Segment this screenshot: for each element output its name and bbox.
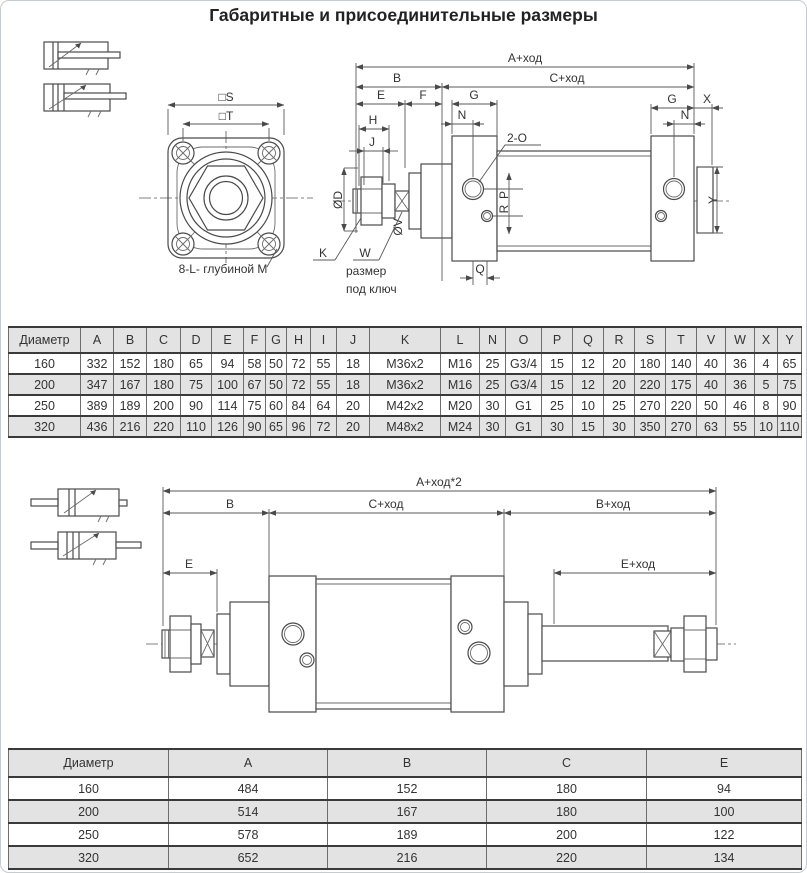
pneumatic-symbol-double-rod-2 — [31, 532, 141, 565]
dimension-cell: 180 — [635, 353, 666, 374]
column-header: Y — [778, 327, 802, 353]
dimension-cell: 63 — [697, 416, 726, 437]
dim-label-a-stroke-x2: A+ход*2 — [416, 475, 462, 489]
column-header: Диаметр — [9, 327, 81, 353]
column-header: A — [169, 749, 328, 777]
pneumatic-symbol-single-rod-2 — [44, 84, 126, 117]
dim-label-g-left: G — [469, 88, 478, 102]
dim-label-f: F — [419, 88, 426, 102]
dimension-cell: 652 — [169, 846, 328, 869]
dimension-cell: M42x2 — [370, 395, 441, 416]
dim-label-c-stroke: C+ход — [550, 71, 585, 85]
dimension-cell: 75 — [778, 374, 802, 395]
dim-label-n-right: N — [681, 108, 690, 122]
dimension-cell: 332 — [81, 353, 114, 374]
column-header: K — [370, 327, 441, 353]
dimension-cell: 220 — [487, 846, 647, 869]
dimension-cell: 200 — [487, 823, 647, 846]
dimension-cell: 20 — [337, 395, 370, 416]
column-header: L — [441, 327, 480, 353]
dimension-cell: 50 — [697, 395, 726, 416]
dimension-cell: 75 — [181, 374, 212, 395]
table-row: 200514167180100 — [9, 800, 802, 823]
dimension-cell: 25 — [480, 353, 506, 374]
dimension-cell: M48x2 — [370, 416, 441, 437]
dimension-cell: 152 — [328, 777, 487, 800]
dimension-cell: 270 — [635, 395, 666, 416]
dimension-cell: 90 — [244, 416, 266, 437]
dimension-cell: 36 — [726, 374, 755, 395]
dimension-cell: 140 — [666, 353, 697, 374]
dimension-cell: M16 — [441, 374, 480, 395]
table-row: 3204362162201101269065967220M48x2M2430G1… — [9, 416, 802, 437]
dim-label-b: B — [393, 71, 401, 85]
dimension-cell: G1 — [506, 395, 542, 416]
dimension-cell: 220 — [666, 395, 697, 416]
dimension-cell: 36 — [726, 353, 755, 374]
dimension-cell: 220 — [635, 374, 666, 395]
dimension-cell: 40 — [697, 353, 726, 374]
page-card: Габаритные и присоединительные размеры — [0, 0, 807, 873]
column-header: D — [181, 327, 212, 353]
column-header: V — [697, 327, 726, 353]
dimension-cell: 55 — [311, 353, 337, 374]
pneumatic-symbol-double-rod-1 — [31, 489, 127, 522]
column-header: J — [337, 327, 370, 353]
flange-thread-note: 8-L- глубиной M — [179, 262, 268, 276]
column-header: E — [647, 749, 802, 777]
dimension-cell: 216 — [114, 416, 147, 437]
dim-label-r: R — [497, 204, 511, 213]
dim-label-b: B — [226, 497, 234, 511]
dimension-cell: 216 — [328, 846, 487, 869]
wrench-size-note-line2: под ключ — [346, 282, 397, 296]
header-row: ДиаметрABCDEFGHIJKLNOPQRSTVWXY — [9, 327, 802, 353]
dimension-cell: 220 — [147, 416, 181, 437]
dimension-cell: 160 — [9, 777, 169, 800]
cylinder-side-view — [333, 136, 729, 261]
dim-label-n-left: N — [458, 108, 467, 122]
dimension-cell: 72 — [287, 374, 311, 395]
dimension-cell: 200 — [9, 374, 81, 395]
dim-label-c-stroke: C+ход — [369, 497, 404, 511]
table-row: 200347167180751006750725518M36x2M1625G3/… — [9, 374, 802, 395]
dimension-cell: 15 — [542, 353, 573, 374]
dimension-cell: 436 — [81, 416, 114, 437]
dimension-cell: 114 — [212, 395, 244, 416]
drawing-double-rod-cylinder: A+ход*2 B C+ход B+ход E E+ход — [1, 469, 807, 747]
dimension-cell: 160 — [9, 353, 81, 374]
column-header: S — [635, 327, 666, 353]
dimension-cell: 110 — [778, 416, 802, 437]
dimension-cell: 484 — [169, 777, 328, 800]
dimension-cell: 30 — [604, 416, 635, 437]
column-header: W — [726, 327, 755, 353]
column-header: T — [666, 327, 697, 353]
dimension-cell: 30 — [480, 416, 506, 437]
dimension-cell: 100 — [212, 374, 244, 395]
column-header: I — [311, 327, 337, 353]
dimension-cell: 18 — [337, 353, 370, 374]
double-rod-cylinder-side-view — [146, 576, 736, 712]
column-header: A — [81, 327, 114, 353]
dimension-cell: 25 — [542, 395, 573, 416]
dimension-cell: 96 — [287, 416, 311, 437]
dimension-cell: 320 — [9, 846, 169, 869]
dimension-cell: 40 — [697, 374, 726, 395]
dimension-cell: 46 — [726, 395, 755, 416]
dimension-cell: 180 — [147, 374, 181, 395]
table-row: 16033215218065945850725518M36x2M1625G3/4… — [9, 353, 802, 374]
dimension-cell: 65 — [181, 353, 212, 374]
dimension-cell: 72 — [287, 353, 311, 374]
dimension-cell: 250 — [9, 395, 81, 416]
column-header: Q — [573, 327, 604, 353]
dimension-cell: 389 — [81, 395, 114, 416]
dimension-cell: 320 — [9, 416, 81, 437]
column-header: R — [604, 327, 635, 353]
dim-label-q-left: Q — [475, 262, 484, 276]
dimension-cell: M24 — [441, 416, 480, 437]
dimension-cell: 200 — [147, 395, 181, 416]
dimension-cell: 58 — [244, 353, 266, 374]
dimensions-table-double-rod: ДиаметрABCE16048415218094200514167180100… — [8, 748, 802, 870]
dimension-cell: 90 — [778, 395, 802, 416]
dimension-cell: 25 — [604, 395, 635, 416]
dimension-cell: 25 — [480, 374, 506, 395]
dimension-cell: 12 — [573, 374, 604, 395]
dimension-cell: M36x2 — [370, 353, 441, 374]
dimension-cell: 180 — [147, 353, 181, 374]
dimension-cell: 110 — [181, 416, 212, 437]
dimension-cell: 72 — [311, 416, 337, 437]
dimension-cell: 152 — [114, 353, 147, 374]
table-row: 16048415218094 — [9, 777, 802, 800]
dim-label-e-stroke: E+ход — [621, 557, 655, 571]
dim-label-w: W — [359, 246, 371, 260]
dimension-cell: 134 — [647, 846, 802, 869]
wrench-size-note-line1: размер — [346, 264, 387, 278]
column-header: X — [755, 327, 778, 353]
dimension-cell: 126 — [212, 416, 244, 437]
dimension-cell: G1 — [506, 416, 542, 437]
dimension-cell: M20 — [441, 395, 480, 416]
dimension-cell: 15 — [542, 374, 573, 395]
column-header: N — [480, 327, 506, 353]
dimension-cell: 60 — [266, 395, 287, 416]
column-header: C — [147, 327, 181, 353]
dimension-cell: 18 — [337, 374, 370, 395]
dimension-cell: 15 — [573, 416, 604, 437]
dimension-cell: 55 — [726, 416, 755, 437]
dim-label-x: X — [703, 92, 711, 106]
dimension-cell: 10 — [755, 416, 778, 437]
dimension-cell: 175 — [666, 374, 697, 395]
dimension-cell: 10 — [573, 395, 604, 416]
dimension-cell: 20 — [604, 353, 635, 374]
dimension-cell: G3/4 — [506, 374, 542, 395]
dimension-cell: 200 — [9, 800, 169, 823]
dimension-cell: 250 — [9, 823, 169, 846]
dimension-cell: 94 — [647, 777, 802, 800]
flange-front-view — [139, 131, 313, 263]
page-title: Габаритные и присоединительные размеры — [1, 5, 806, 26]
dim-label-square-t: □T — [219, 109, 234, 123]
dimension-cell: 64 — [311, 395, 337, 416]
dimension-cell: 578 — [169, 823, 328, 846]
dimension-cell: 122 — [647, 823, 802, 846]
dimension-cell: 94 — [212, 353, 244, 374]
dim-label-ports-2-o: 2-O — [507, 131, 527, 145]
column-header: C — [487, 749, 647, 777]
dimension-cell: 347 — [81, 374, 114, 395]
column-header: E — [212, 327, 244, 353]
drawing-single-rod-cylinder: □S □T 8-L- глубиной M — [1, 31, 807, 327]
dimension-cell: 65 — [778, 353, 802, 374]
dimension-cell: 12 — [573, 353, 604, 374]
table-row: 250578189200122 — [9, 823, 802, 846]
dim-label-k: K — [319, 246, 327, 260]
dimension-cell: 8 — [755, 395, 778, 416]
dimension-cell: 75 — [244, 395, 266, 416]
dimension-cell: M36x2 — [370, 374, 441, 395]
dim-label-a-stroke: A+ход — [508, 51, 542, 65]
dimension-cell: 167 — [328, 800, 487, 823]
dimension-cell: 55 — [311, 374, 337, 395]
column-header: G — [266, 327, 287, 353]
pneumatic-symbol-single-rod-1 — [44, 42, 120, 75]
dimension-cell: 5 — [755, 374, 778, 395]
column-header: B — [328, 749, 487, 777]
dim-label-j: J — [369, 135, 375, 149]
dimension-cell: 50 — [266, 353, 287, 374]
dimension-cell: 84 — [287, 395, 311, 416]
column-header: F — [244, 327, 266, 353]
dimension-cell: 350 — [635, 416, 666, 437]
dimension-cell: 50 — [266, 374, 287, 395]
dimension-cell: 100 — [647, 800, 802, 823]
column-header: P — [542, 327, 573, 353]
dimensions-table-main: ДиаметрABCDEFGHIJKLNOPQRSTVWXY1603321521… — [8, 326, 802, 438]
dim-label-y: Y — [706, 196, 720, 204]
dim-label-diameter-d: ØD — [331, 191, 345, 209]
dimension-cell: 65 — [266, 416, 287, 437]
dimension-cell: 270 — [666, 416, 697, 437]
column-header: O — [506, 327, 542, 353]
dimension-cell: 189 — [328, 823, 487, 846]
dimension-cell: 30 — [480, 395, 506, 416]
dimension-cell: 4 — [755, 353, 778, 374]
header-row: ДиаметрABCE — [9, 749, 802, 777]
column-header: B — [114, 327, 147, 353]
dimension-cell: 180 — [487, 800, 647, 823]
dimension-cell: G3/4 — [506, 353, 542, 374]
dimension-cell: M16 — [441, 353, 480, 374]
dimension-cell: 189 — [114, 395, 147, 416]
dimension-cell: 30 — [542, 416, 573, 437]
dim-label-b-stroke: B+ход — [596, 497, 630, 511]
table-row: 250389189200901147560846420M42x2M2030G12… — [9, 395, 802, 416]
dim-label-e: E — [185, 557, 193, 571]
dim-label-p: P — [497, 191, 511, 199]
column-header: H — [287, 327, 311, 353]
column-header: Диаметр — [9, 749, 169, 777]
dimension-cell: 514 — [169, 800, 328, 823]
dimension-cell: 180 — [487, 777, 647, 800]
dim-label-g-right: G — [667, 92, 676, 106]
dim-label-square-s: □S — [218, 90, 233, 104]
dimension-cell: 90 — [181, 395, 212, 416]
dimension-cell: 20 — [604, 374, 635, 395]
dimension-cell: 67 — [244, 374, 266, 395]
dimension-cell: 167 — [114, 374, 147, 395]
dimension-cell: 20 — [337, 416, 370, 437]
dim-label-e: E — [377, 88, 385, 102]
table-row: 320652216220134 — [9, 846, 802, 869]
dim-label-h: H — [369, 113, 378, 127]
